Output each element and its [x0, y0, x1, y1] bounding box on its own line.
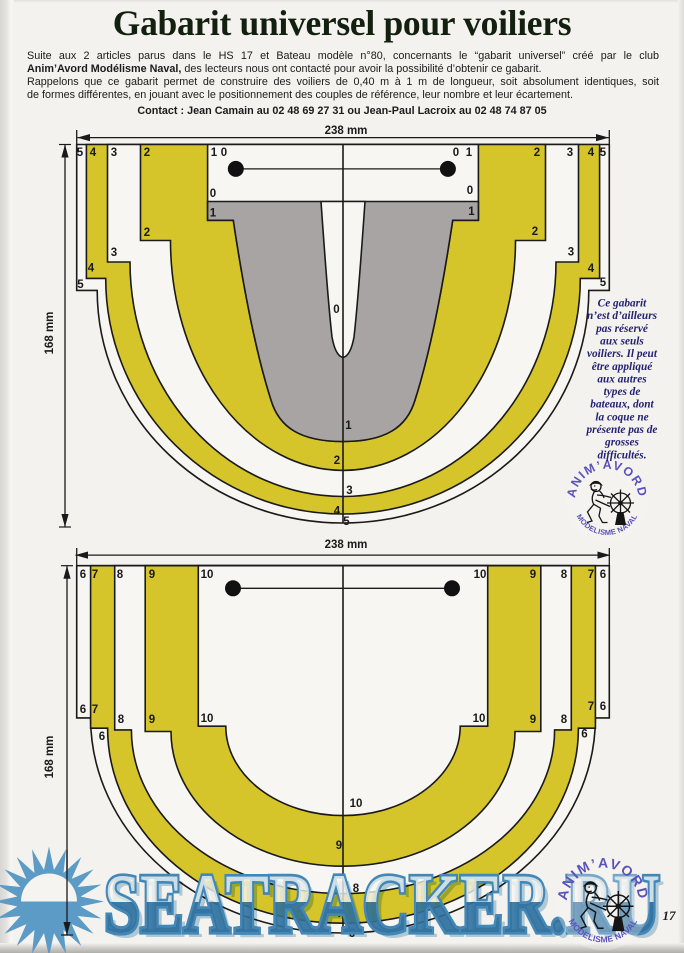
svg-text:1: 1 [468, 206, 475, 218]
svg-text:2: 2 [144, 227, 150, 239]
svg-text:2: 2 [532, 226, 538, 238]
svg-text:2: 2 [534, 147, 540, 159]
svg-text:présente pas de: présente pas de [586, 424, 658, 436]
svg-text:4: 4 [588, 147, 595, 159]
svg-text:6: 6 [80, 704, 86, 716]
svg-text:1: 1 [345, 420, 352, 432]
svg-text:2: 2 [144, 147, 150, 159]
svg-text:9: 9 [530, 714, 536, 726]
svg-text:6: 6 [581, 729, 587, 741]
svg-text:5: 5 [600, 277, 607, 289]
svg-text:3: 3 [346, 485, 352, 497]
svg-text:8: 8 [117, 569, 124, 581]
svg-text:0: 0 [453, 147, 459, 159]
svg-text:3: 3 [111, 147, 117, 159]
svg-text:8: 8 [561, 569, 568, 581]
svg-text:10: 10 [474, 569, 487, 581]
svg-text:4: 4 [588, 263, 595, 275]
svg-text:4: 4 [88, 263, 95, 275]
svg-text:5: 5 [77, 279, 84, 291]
svg-text:pas réservé: pas réservé [595, 323, 649, 335]
svg-text:10: 10 [201, 569, 214, 581]
svg-text:9: 9 [149, 714, 155, 726]
svg-text:7: 7 [92, 704, 98, 716]
svg-text:9: 9 [149, 569, 155, 581]
svg-text:aux autres: aux autres [597, 373, 647, 385]
svg-text:grosses: grosses [604, 437, 639, 449]
svg-text:6: 6 [600, 701, 606, 713]
svg-text:9: 9 [336, 840, 342, 852]
svg-text:6: 6 [99, 731, 105, 743]
svg-text:être appliqué: être appliqué [592, 361, 654, 373]
svg-text:2: 2 [334, 455, 340, 467]
svg-text:9: 9 [530, 569, 536, 581]
svg-text:4: 4 [90, 147, 97, 159]
svg-text:0: 0 [221, 147, 227, 159]
svg-text:types de: types de [604, 386, 641, 398]
svg-text:1: 1 [466, 147, 473, 159]
svg-text:3: 3 [111, 247, 117, 259]
svg-text:168 mm: 168 mm [44, 736, 56, 779]
svg-text:la coque ne: la coque ne [595, 411, 648, 423]
svg-text:238 mm: 238 mm [325, 125, 368, 137]
svg-text:10: 10 [350, 798, 363, 810]
svg-text:7: 7 [588, 569, 594, 581]
svg-text:0: 0 [333, 304, 339, 316]
svg-text:Ce gabarit: Ce gabarit [598, 298, 648, 310]
svg-text:7: 7 [92, 569, 98, 581]
svg-text:5: 5 [77, 147, 84, 159]
svg-text:5: 5 [600, 147, 607, 159]
svg-text:1: 1 [211, 147, 218, 159]
svg-text:8: 8 [118, 714, 125, 726]
svg-text:6: 6 [80, 569, 86, 581]
svg-text:3: 3 [567, 147, 573, 159]
svg-text:8: 8 [561, 714, 568, 726]
svg-text:voiliers. Il peut: voiliers. Il peut [587, 348, 658, 360]
svg-text:1: 1 [210, 208, 217, 220]
svg-text:0: 0 [210, 188, 216, 200]
svg-text:4: 4 [334, 506, 341, 518]
svg-text:17: 17 [663, 908, 677, 923]
svg-text:n’est d’ailleurs: n’est d’ailleurs [587, 310, 658, 322]
svg-text:10: 10 [201, 713, 214, 725]
svg-text:bateaux, dont: bateaux, dont [590, 399, 654, 411]
svg-text:5: 5 [343, 516, 350, 528]
svg-text:238 mm: 238 mm [325, 539, 368, 551]
svg-text:7: 7 [588, 701, 594, 713]
svg-text:0: 0 [467, 185, 473, 197]
svg-text:difficultés.: difficultés. [597, 449, 646, 461]
svg-text:10: 10 [473, 713, 486, 725]
svg-text:168 mm: 168 mm [44, 312, 56, 355]
svg-text:aux seuls: aux seuls [600, 335, 644, 347]
svg-text:6: 6 [600, 569, 606, 581]
svg-text:3: 3 [568, 247, 574, 259]
